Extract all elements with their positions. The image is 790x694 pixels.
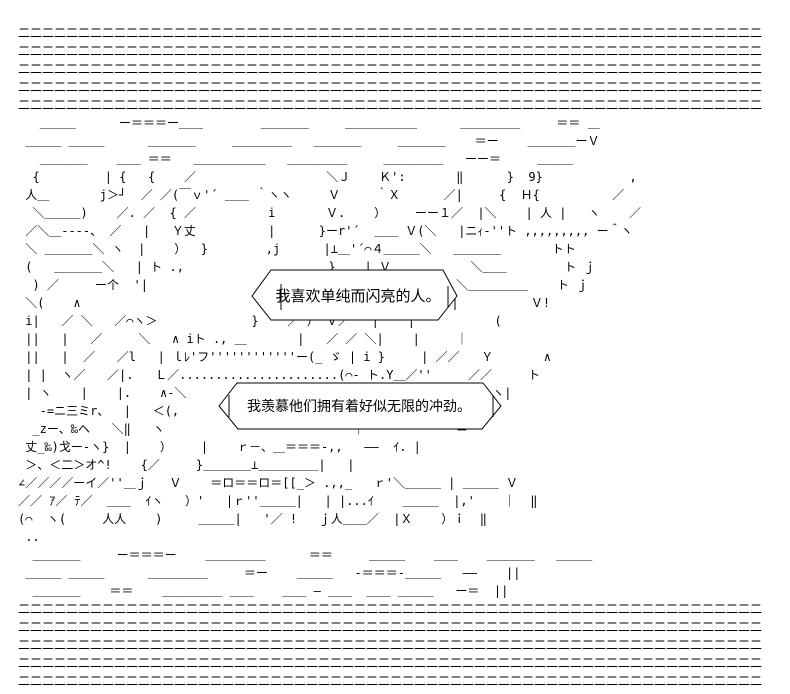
ascii-art-scene: 二二二二二二二二二二二二二二二二二二二二二二二二二二二二二二二二二二二二二二二二… [0,0,790,694]
speech-bubble-1-text: 我喜欢单纯而闪亮的人。 [275,287,440,305]
speech-bubble-2: 我羡慕他们拥有着好似无限的冲劲。 [212,375,506,435]
ascii-art-block: 二二二二二二二二二二二二二二二二二二二二二二二二二二二二二二二二二二二二二二二二… [18,24,778,690]
speech-bubble-2-text: 我羡慕他们拥有着好似无限的冲劲。 [247,398,471,415]
speech-bubble-1: 我喜欢单纯而闪亮的人。 [245,263,467,327]
